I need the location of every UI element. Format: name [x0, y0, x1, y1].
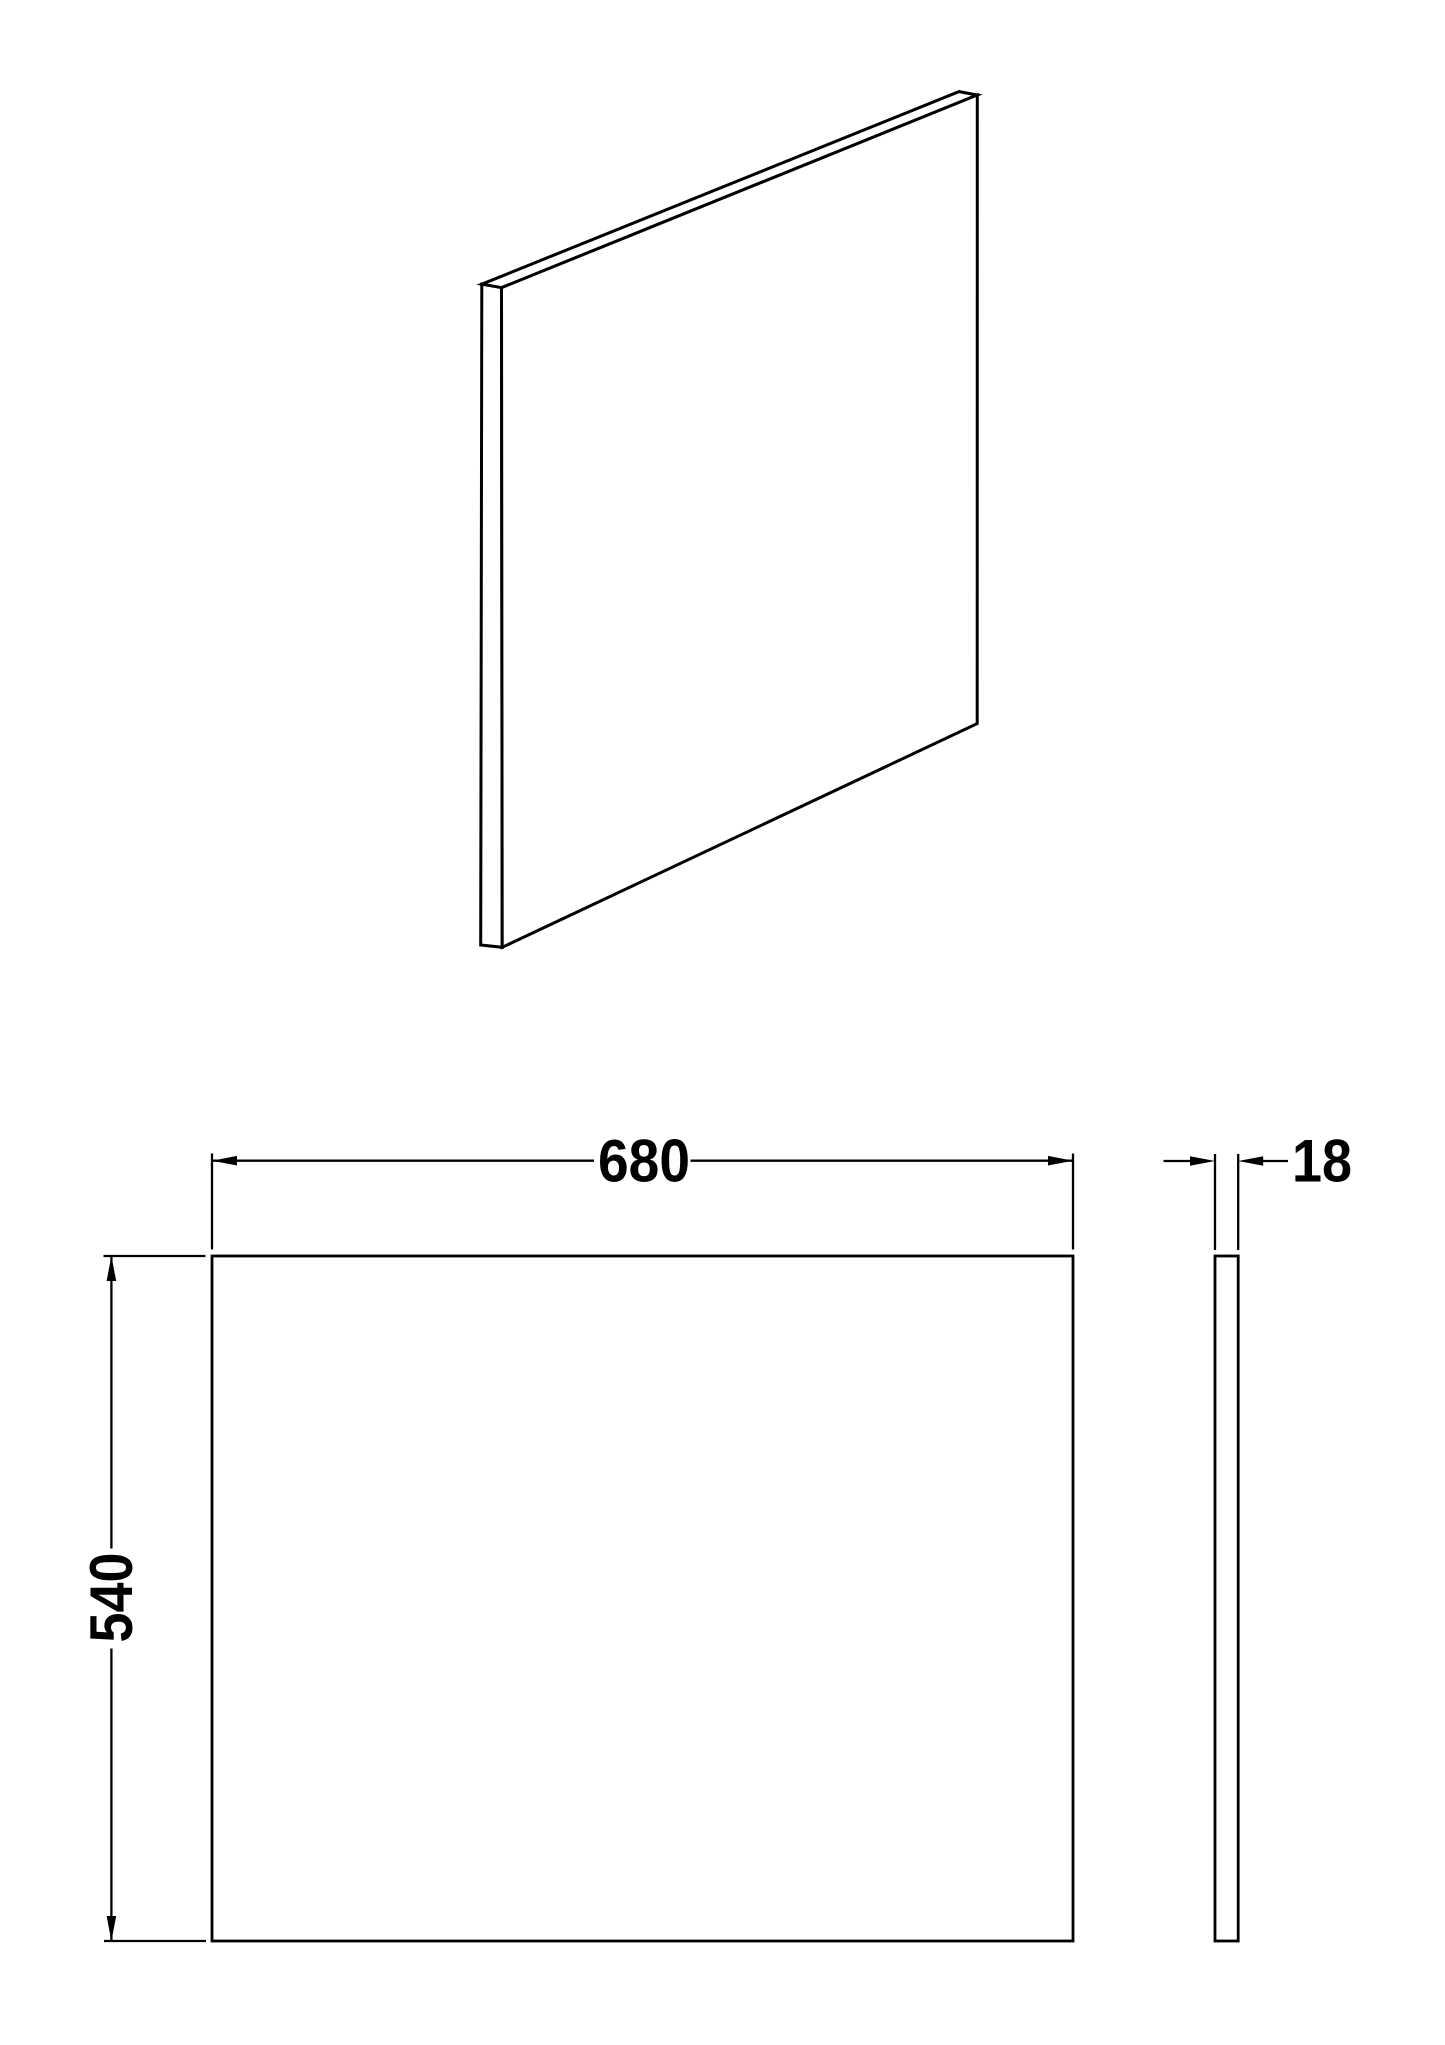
svg-text:680: 680 — [598, 1128, 690, 1195]
svg-text:18: 18 — [1292, 1128, 1352, 1195]
svg-text:540: 540 — [78, 1553, 145, 1643]
